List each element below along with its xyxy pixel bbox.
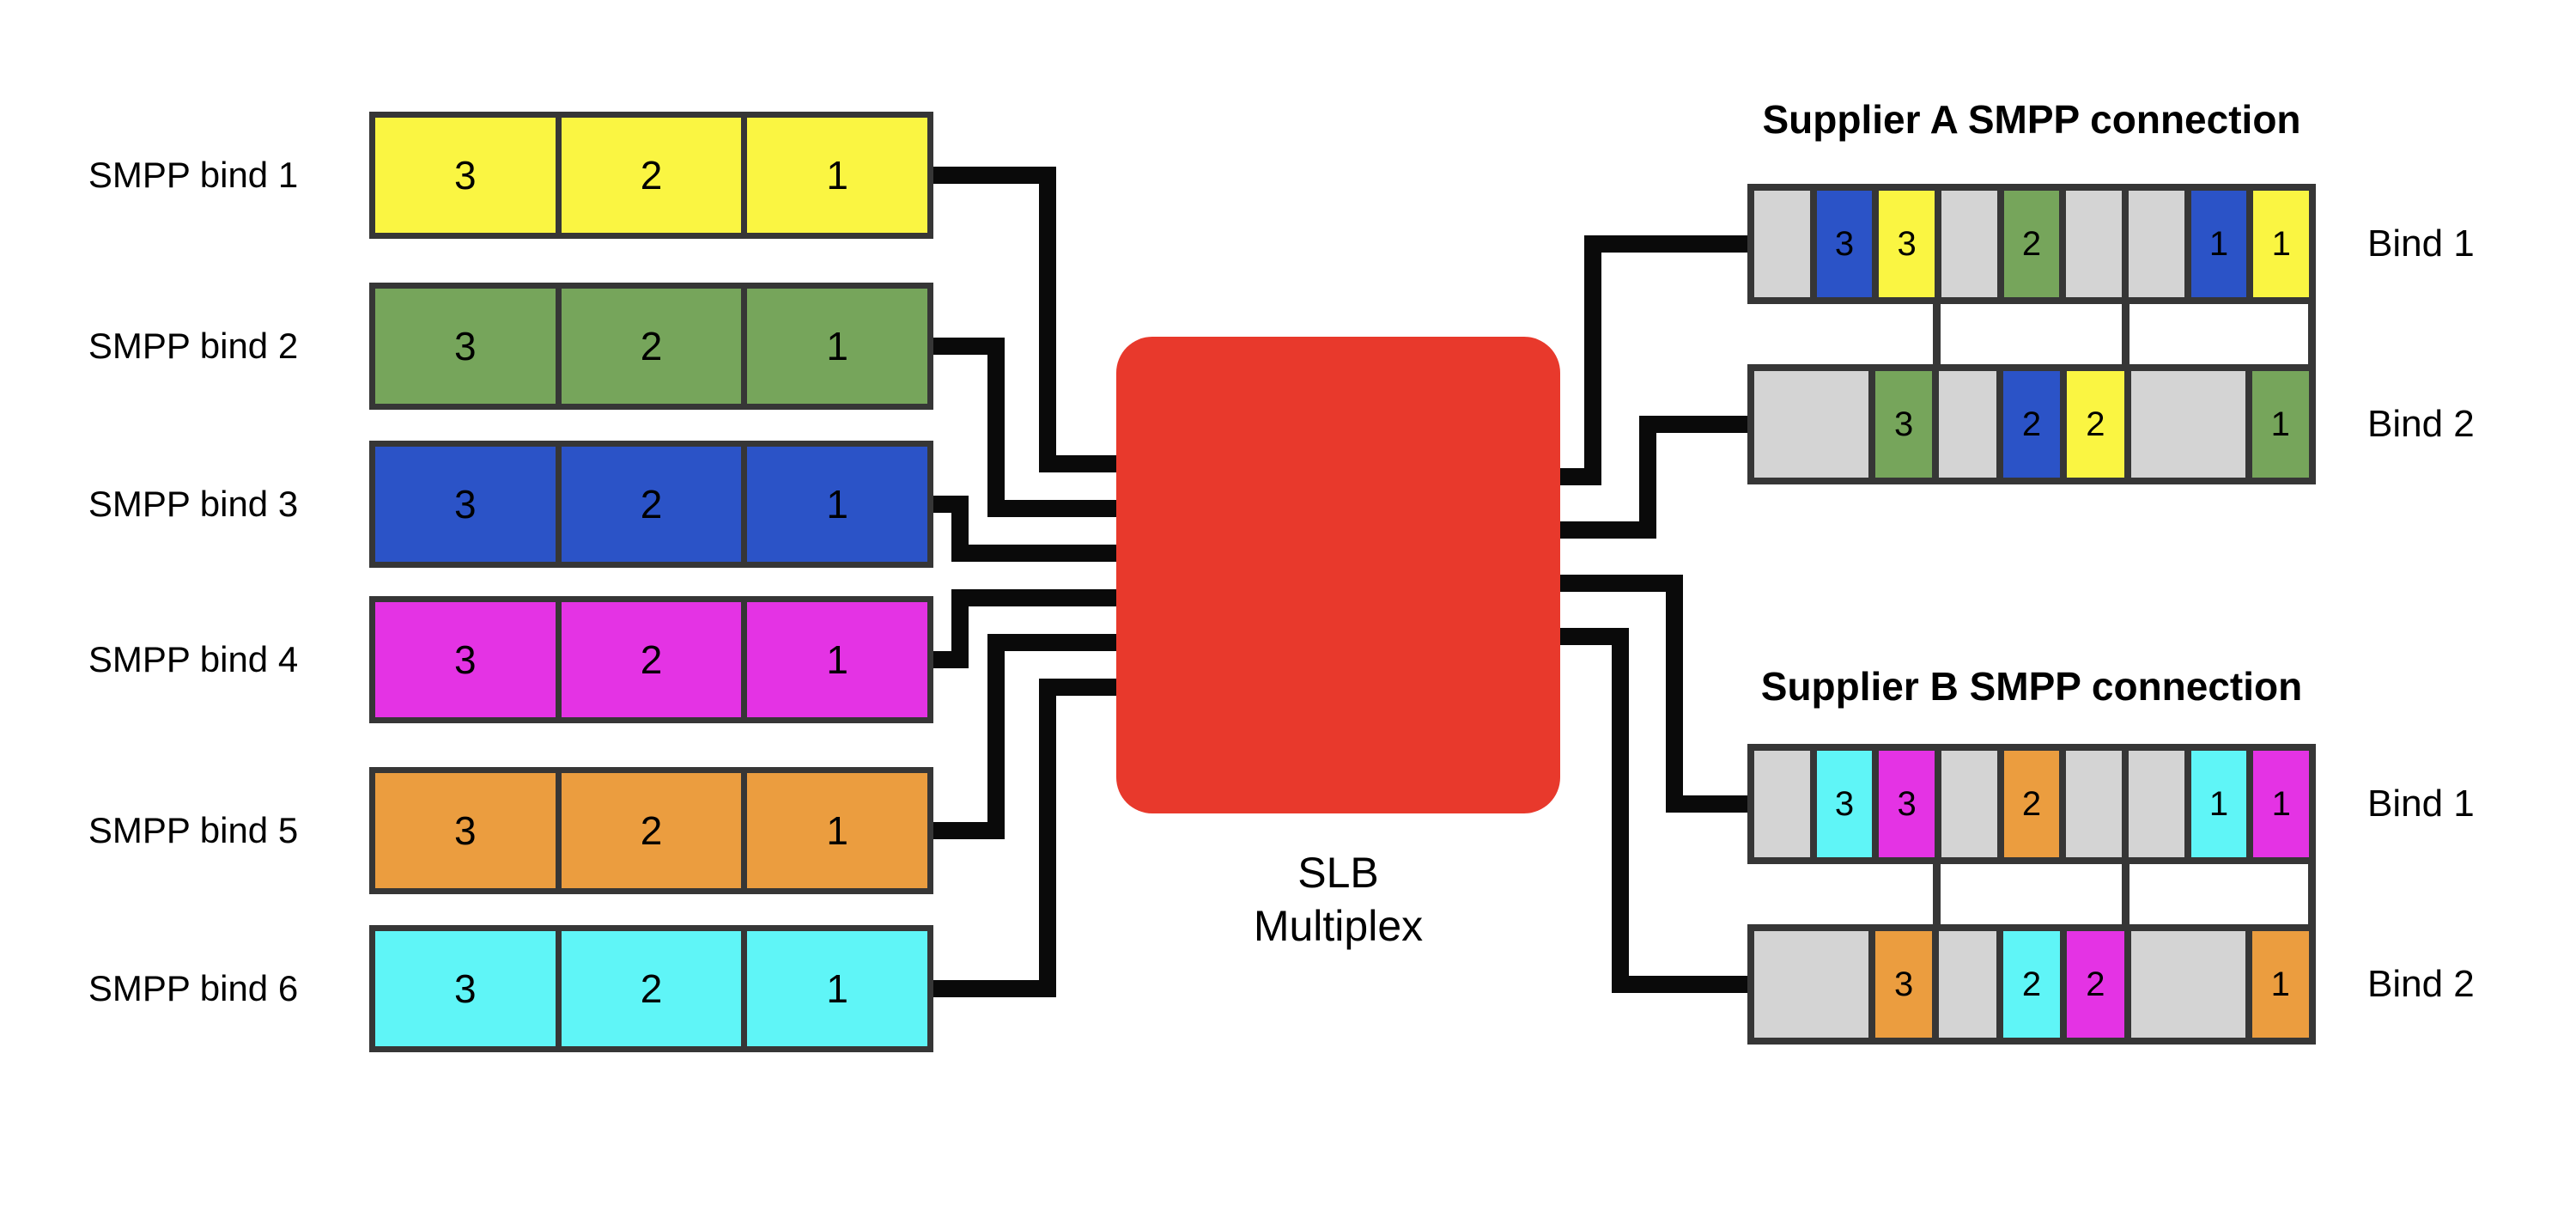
smpp-bind-1-slot-2: 2 <box>556 118 742 233</box>
supplier-a-gap-divider-3 <box>2308 302 2316 366</box>
smpp-bind-5-slot-1: 1 <box>741 773 927 888</box>
smpp-bind-4-slot-1: 1 <box>741 602 927 717</box>
wire-smpp-bind-1 <box>933 175 1118 464</box>
supplier-b-bind-2-slot-6-idle <box>2124 931 2245 1038</box>
smpp-bind-6-slot-1: 1 <box>741 931 927 1046</box>
supplier-b-bind-1-slot-6-idle <box>2059 751 2122 857</box>
slb-multiplexer-label-line2: Multiplex <box>1116 899 1560 953</box>
smpp-bind-3-box: 321 <box>369 441 933 568</box>
wire-supplier-b-bind-1 <box>1558 583 1749 804</box>
slb-multiplexer-label-line1: SLB <box>1116 846 1560 899</box>
supplier-a-bind-1-slot-8-msg-1: 1 <box>2184 191 2247 297</box>
supplier-a-bind-2-strip: 3221 <box>1747 364 2316 484</box>
smpp-bind-1-slot-1: 1 <box>741 118 927 233</box>
supplier-a-bind-1-strip: 33211 <box>1747 184 2316 304</box>
supplier-b-bind-1-slot-3-msg-3: 3 <box>1872 751 1935 857</box>
supplier-a-bind-1-slot-5-msg-2: 2 <box>1997 191 2060 297</box>
label-smpp-bind-4: SMPP bind 4 <box>34 639 352 680</box>
wire-smpp-bind-2-line <box>933 346 1118 509</box>
supplier-a-bind-2-slot-4-msg-2: 2 <box>1996 371 2060 478</box>
label-smpp-bind-6: SMPP bind 6 <box>34 968 352 1009</box>
supplier-a-bind-1-slot-4-idle <box>1935 191 1997 297</box>
supplier-a-bind-2-slot-1-idle <box>1754 371 1868 478</box>
smpp-multiplex-diagram: SMPP bind 1321SMPP bind 2321SMPP bind 33… <box>0 0 2576 1206</box>
supplier-b-bind-2-label: Bind 2 <box>2367 963 2475 1006</box>
supplier-a-bind-1-label: Bind 1 <box>2367 222 2475 265</box>
label-smpp-bind-2: SMPP bind 2 <box>34 326 352 367</box>
supplier-b-bind-1-slot-1-idle <box>1754 751 1810 857</box>
supplier-a-bind-2-slot-7-msg-1: 1 <box>2245 371 2309 478</box>
supplier-a-title: Supplier A SMPP connection <box>1747 96 2316 143</box>
supplier-b-bind-1-label: Bind 1 <box>2367 783 2475 825</box>
smpp-bind-3-slot-3: 3 <box>375 447 556 562</box>
supplier-a-bind-1-slot-3-msg-3: 3 <box>1872 191 1935 297</box>
slb-multiplexer-box <box>1116 337 1560 813</box>
supplier-a-bind-1-slot-7-idle <box>2122 191 2184 297</box>
smpp-bind-3-slot-1: 1 <box>741 447 927 562</box>
smpp-bind-2-slot-1: 1 <box>741 289 927 404</box>
supplier-b-bind-1-strip: 33211 <box>1747 744 2316 864</box>
supplier-a-bind-2-slot-5-msg-2: 2 <box>2060 371 2123 478</box>
smpp-bind-5-slot-3: 3 <box>375 773 556 888</box>
smpp-bind-2-slot-3: 3 <box>375 289 556 404</box>
label-smpp-bind-1: SMPP bind 1 <box>34 155 352 196</box>
supplier-a-bind-2-slot-3-idle <box>1932 371 1996 478</box>
wire-smpp-bind-2-casing <box>933 346 1118 509</box>
label-smpp-bind-5: SMPP bind 5 <box>34 810 352 851</box>
smpp-bind-4-slot-3: 3 <box>375 602 556 717</box>
supplier-a-bind-1-slot-1-idle <box>1754 191 1810 297</box>
smpp-bind-6-box: 321 <box>369 925 933 1052</box>
smpp-bind-6-slot-2: 2 <box>556 931 742 1046</box>
supplier-b-bind-2-slot-4-msg-2: 2 <box>1996 931 2060 1038</box>
supplier-b-gap-divider-1 <box>1933 862 1941 926</box>
supplier-b-bind-2-strip: 3221 <box>1747 924 2316 1045</box>
supplier-a-bind-2-slot-2-msg-3: 3 <box>1868 371 1932 478</box>
supplier-b-bind-1-slot-2-msg-3: 3 <box>1810 751 1873 857</box>
smpp-bind-4-slot-2: 2 <box>556 602 742 717</box>
smpp-bind-2-box: 321 <box>369 283 933 410</box>
supplier-b-bind-2-slot-5-msg-2: 2 <box>2060 931 2123 1038</box>
wire-supplier-b-bind-1-line <box>1558 583 1749 804</box>
supplier-b-title: Supplier B SMPP connection <box>1747 663 2316 710</box>
supplier-a-bind-1-slot-6-idle <box>2059 191 2122 297</box>
smpp-bind-1-box: 321 <box>369 112 933 239</box>
supplier-a-bind-2-label: Bind 2 <box>2367 403 2475 446</box>
smpp-bind-3-slot-2: 2 <box>556 447 742 562</box>
supplier-a-bind-1-slot-9-msg-1: 1 <box>2246 191 2309 297</box>
label-smpp-bind-3: SMPP bind 3 <box>34 484 352 525</box>
wire-smpp-bind-1-line <box>933 175 1118 464</box>
supplier-a-gap-divider-1 <box>1933 302 1941 366</box>
supplier-b-bind-1-slot-5-msg-2: 2 <box>1997 751 2060 857</box>
smpp-bind-4-box: 321 <box>369 596 933 723</box>
supplier-a-bind-2-slot-6-idle <box>2124 371 2245 478</box>
slb-multiplexer-label: SLB Multiplex <box>1116 846 1560 953</box>
supplier-b-gap-divider-2 <box>2122 862 2129 926</box>
supplier-a-bind-1-slot-2-msg-3: 3 <box>1810 191 1873 297</box>
smpp-bind-2-slot-2: 2 <box>556 289 742 404</box>
smpp-bind-1-slot-3: 3 <box>375 118 556 233</box>
supplier-a-gap-divider-2 <box>2122 302 2129 366</box>
smpp-bind-5-slot-2: 2 <box>556 773 742 888</box>
wire-smpp-bind-1-casing <box>933 175 1118 464</box>
supplier-b-bind-2-slot-7-msg-1: 1 <box>2245 931 2309 1038</box>
supplier-b-bind-2-slot-2-msg-3: 3 <box>1868 931 1932 1038</box>
supplier-b-bind-2-slot-1-idle <box>1754 931 1868 1038</box>
supplier-b-bind-1-slot-8-msg-1: 1 <box>2184 751 2247 857</box>
supplier-b-bind-1-slot-9-msg-1: 1 <box>2246 751 2309 857</box>
smpp-bind-5-box: 321 <box>369 767 933 894</box>
wire-supplier-b-bind-1-casing <box>1558 583 1749 804</box>
supplier-b-bind-2-slot-3-idle <box>1932 931 1996 1038</box>
supplier-b-gap-divider-3 <box>2308 862 2316 926</box>
supplier-b-bind-1-slot-7-idle <box>2122 751 2184 857</box>
smpp-bind-6-slot-3: 3 <box>375 931 556 1046</box>
supplier-b-bind-1-slot-4-idle <box>1935 751 1997 857</box>
wire-smpp-bind-2 <box>933 346 1118 509</box>
